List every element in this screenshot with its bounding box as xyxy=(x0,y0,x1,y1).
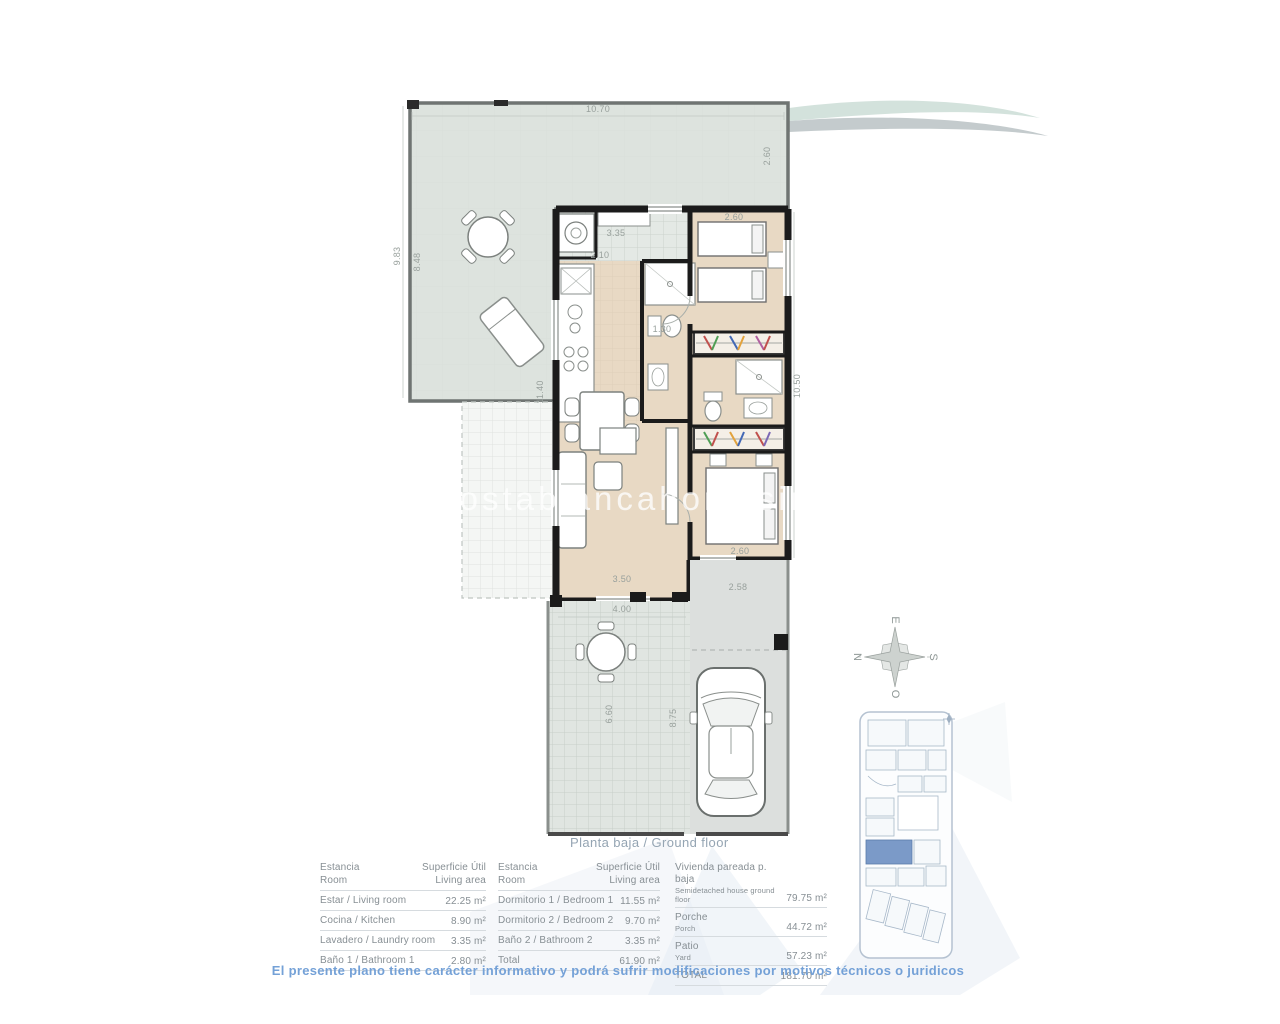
patio-area xyxy=(548,560,788,834)
compass-west-label: O xyxy=(889,690,901,699)
table-row: Vivienda pareada p. baja Semidetached ho… xyxy=(675,862,827,908)
compass-south-label: S xyxy=(927,653,939,660)
row-label-es: Patio xyxy=(675,941,699,952)
dim-kitchen: 2.10 xyxy=(591,250,610,260)
table-row: Dormitorio 1 / Bedroom 1 11.55 m² xyxy=(498,891,660,911)
header-estancia: Estancia xyxy=(498,862,538,873)
table-row: Dormitorio 2 / Bedroom 2 9.70 m² xyxy=(498,911,660,931)
dim-top-width: 10.70 xyxy=(586,104,610,114)
plan-caption: Planta baja / Ground floor xyxy=(570,835,729,850)
dim-living: 3.50 xyxy=(613,574,632,584)
row-value: 11.55 m² xyxy=(620,896,660,907)
car xyxy=(690,668,772,816)
row-value: 79.75 m² xyxy=(786,893,827,904)
highlighted-unit xyxy=(866,840,912,864)
dim-rear-porch: 2.58 xyxy=(729,582,748,592)
dim-patio-height: 6.60 xyxy=(604,705,614,724)
wardrobe-2 xyxy=(694,428,784,450)
row-value: 44.72 m² xyxy=(786,922,827,933)
dim-terrace-right: 2.60 xyxy=(762,147,772,166)
watermark-text: costablancahomesinspain xyxy=(439,480,911,517)
row-label: Estar / Living room xyxy=(320,895,406,907)
row-label: Dormitorio 2 / Bedroom 2 xyxy=(498,915,613,927)
row-label-en: Yard xyxy=(675,953,699,962)
row-value: 3.35 m² xyxy=(451,936,486,947)
row-label: Dormitorio 1 / Bedroom 1 xyxy=(498,895,613,907)
header-room: Room xyxy=(498,875,525,886)
row-label-en: Semidetached house ground floor xyxy=(675,886,786,904)
room-table-middle: Estancia Room Superficie Útil Living are… xyxy=(498,862,660,971)
row-label-en: Porch xyxy=(675,924,708,933)
wardrobe-1 xyxy=(694,332,784,354)
compass: E N S O xyxy=(851,616,939,698)
room-table-left: Estancia Room Superficie Útil Living are… xyxy=(320,862,486,971)
table-row: Estar / Living room 22.25 m² xyxy=(320,891,486,911)
row-value: 3.35 m² xyxy=(625,936,660,947)
row-value: 9.70 m² xyxy=(625,916,660,927)
house-area xyxy=(551,204,793,606)
floor-plan-page: 10.70 2.60 9.83 8.48 11.40 3.35 2.10 1.3… xyxy=(0,0,1280,1024)
dim-bedroom2: 2.60 xyxy=(731,546,750,556)
dim-driveway-height: 8.75 xyxy=(668,709,678,728)
table-row: Baño 2 / Bathroom 2 3.35 m² xyxy=(498,931,660,951)
row-label-es: Porche xyxy=(675,912,708,923)
row-value: 22.25 m² xyxy=(445,896,486,907)
row-label: Cocina / Kitchen xyxy=(320,915,395,927)
row-value: 57.23 m² xyxy=(786,951,827,962)
row-label-es: Vivienda pareada p. baja xyxy=(675,862,767,885)
swoosh-graphic xyxy=(789,101,1048,136)
header-superficie: Superficie Útil xyxy=(596,862,660,873)
site-key-plan xyxy=(860,712,955,958)
dim-right-side: 10.50 xyxy=(792,374,802,398)
compass-north-label: N xyxy=(851,653,863,661)
compass-east-label: E xyxy=(889,616,901,623)
dim-bath1: 1.30 xyxy=(653,324,672,334)
row-label: Porche Porch xyxy=(675,912,708,933)
dim-bedroom1: 2.60 xyxy=(725,212,744,222)
header-living-area: Living area xyxy=(609,875,660,886)
row-label: Vivienda pareada p. baja Semidetached ho… xyxy=(675,862,786,904)
dim-terrace-left-inner: 8.48 xyxy=(412,253,422,272)
table-header: Estancia Room Superficie Útil Living are… xyxy=(498,862,660,891)
table-row: Cocina / Kitchen 8.90 m² xyxy=(320,911,486,931)
table-header: Estancia Room Superficie Útil Living are… xyxy=(320,862,486,891)
header-room: Room xyxy=(320,875,347,886)
row-label: Patio Yard xyxy=(675,941,699,962)
table-row: Patio Yard 57.23 m² xyxy=(675,937,827,966)
row-label: Lavadero / Laundry room xyxy=(320,935,435,947)
dim-terrace-left-outer: 9.83 xyxy=(392,247,402,266)
row-label: Baño 2 / Bathroom 2 xyxy=(498,935,593,947)
dim-corridor: 3.35 xyxy=(607,228,626,238)
header-superficie: Superficie Útil xyxy=(422,862,486,873)
table-row: Porche Porch 44.72 m² xyxy=(675,908,827,937)
row-value: 8.90 m² xyxy=(451,916,486,927)
terrace-table xyxy=(460,209,515,264)
dim-house-left: 11.40 xyxy=(535,380,545,403)
header-living-area: Living area xyxy=(435,875,486,886)
dim-patio-width: 4.00 xyxy=(613,604,632,614)
disclaimer-text: El presente plano tiene carácter informa… xyxy=(272,963,964,978)
table-row: Lavadero / Laundry room 3.35 m² xyxy=(320,931,486,951)
header-estancia: Estancia xyxy=(320,862,360,873)
